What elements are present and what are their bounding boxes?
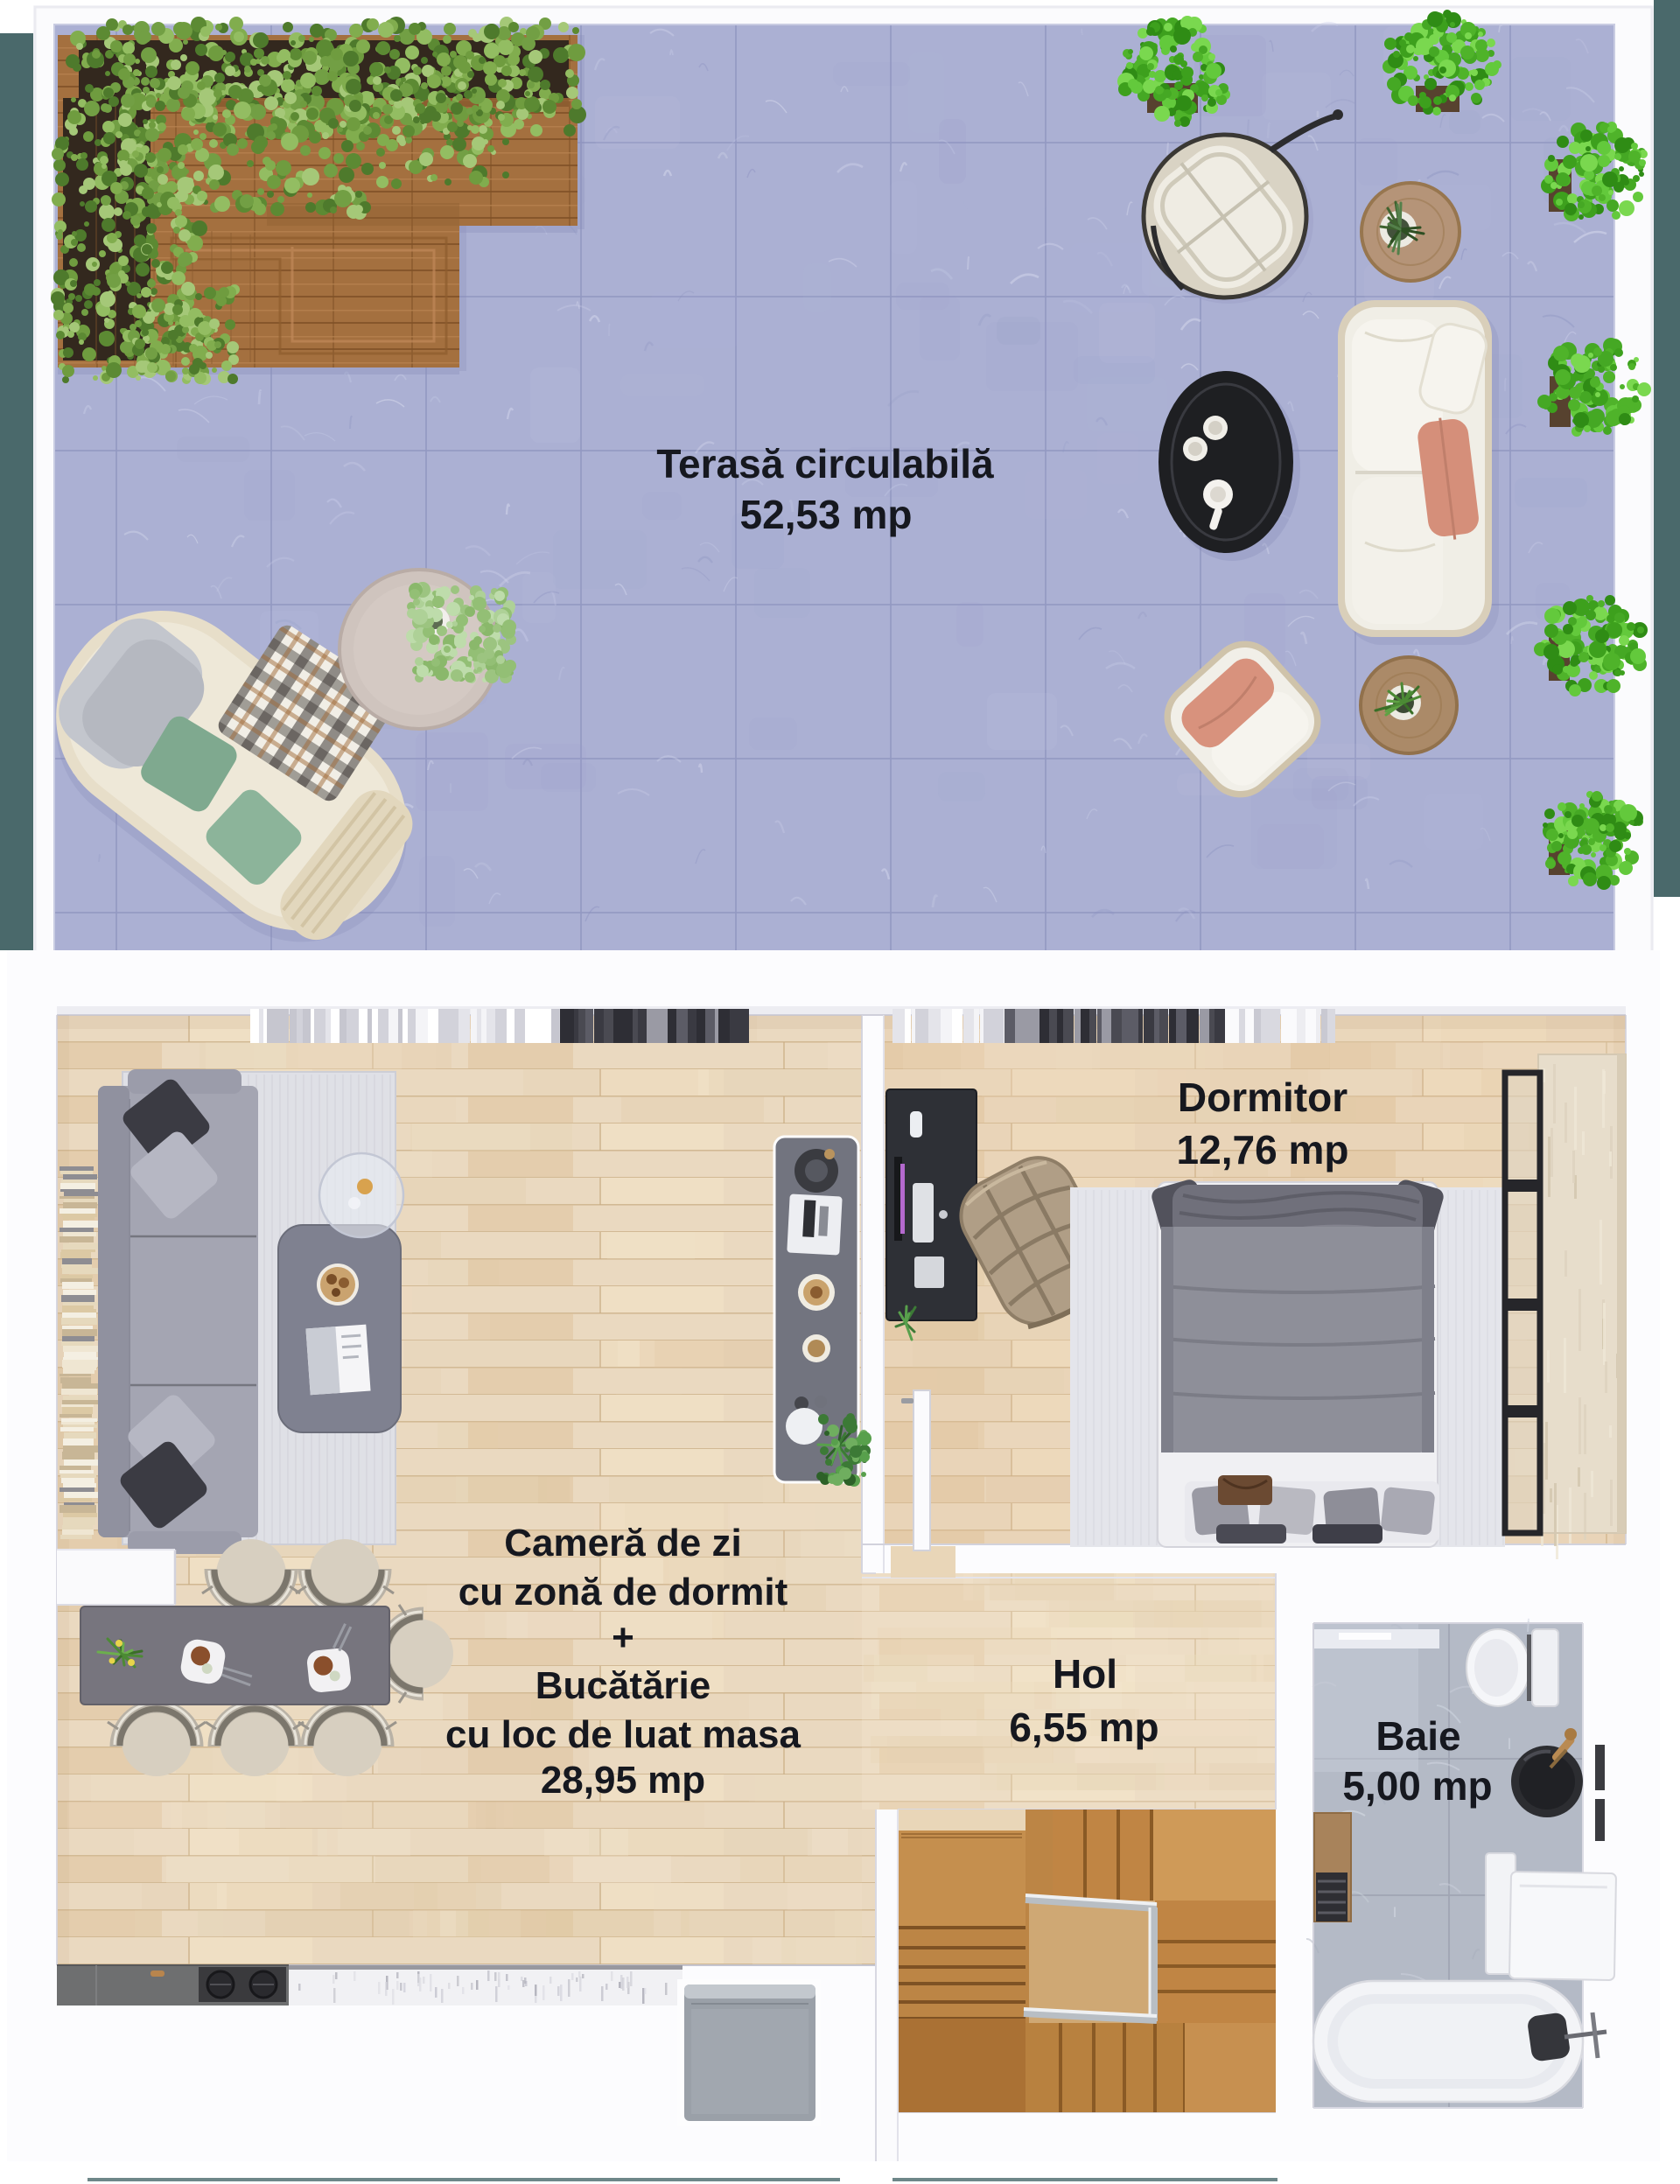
svg-text:Baie: Baie: [1375, 1713, 1460, 1759]
svg-text:+: +: [612, 1616, 634, 1659]
svg-text:Dormitor: Dormitor: [1178, 1074, 1347, 1120]
svg-text:Terasă circulabilă: Terasă circulabilă: [656, 441, 994, 486]
svg-text:cu loc de luat masa: cu loc de luat masa: [445, 1713, 801, 1756]
svg-text:28,95 mp: 28,95 mp: [541, 1759, 705, 1802]
svg-text:Hol: Hol: [1053, 1651, 1117, 1697]
svg-text:5,00 mp: 5,00 mp: [1342, 1763, 1492, 1809]
svg-text:6,55 mp: 6,55 mp: [1009, 1704, 1158, 1750]
svg-text:cu zonă de dormit: cu zonă de dormit: [458, 1571, 788, 1613]
svg-text:12,76 mp: 12,76 mp: [1177, 1127, 1349, 1172]
svg-text:Bucătărie: Bucătărie: [535, 1664, 711, 1707]
svg-text:52,53 mp: 52,53 mp: [740, 492, 913, 537]
svg-text:Cameră de zi: Cameră de zi: [504, 1522, 741, 1564]
